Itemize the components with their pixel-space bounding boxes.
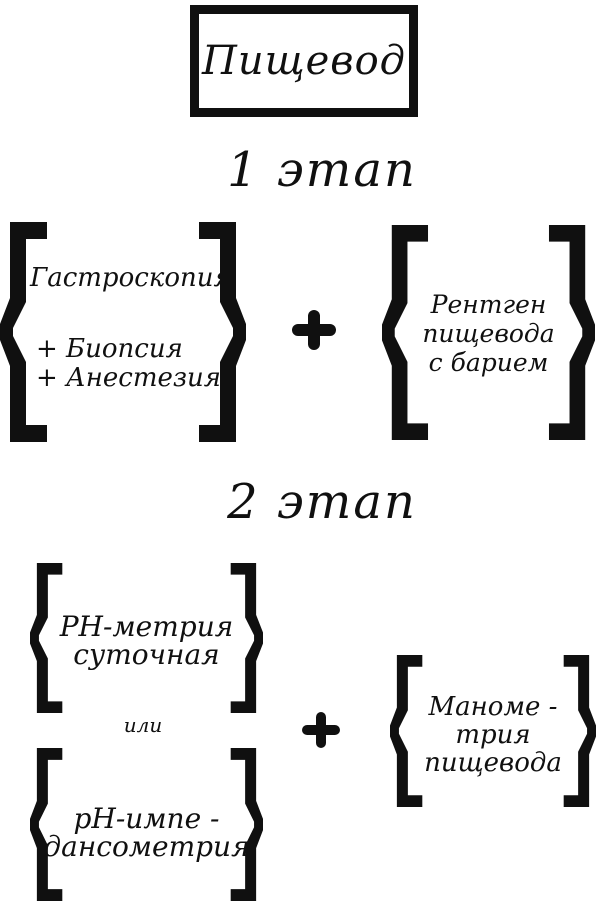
plus-vertical-bar [316,712,326,748]
stage1-right-group: Рентген пищевода с барием [382,225,595,440]
stage2-right-group: Маноме - трия пищевода [390,655,596,807]
page-title: Пищевод [202,38,406,84]
stage2-option-a-text: PH-метрия суточная [58,613,235,669]
stage2-right-text: Маноме - трия пищевода [418,693,568,777]
diagram-canvas: Пищевод 1 этап Гастроскопия + Биопсия + … [0,0,600,906]
stage1-right-line2: пищевода [422,319,554,348]
stage1-left-group: Гастроскопия + Биопсия + Анестезия [0,222,246,442]
plus-vertical-bar [308,310,320,350]
stage2-option-b-group: pH-импе - дансометрия [30,748,263,901]
stage1-right-line1: Рентген [431,290,547,319]
stage1-right-text: Рентген пищевода с барием [422,290,555,377]
plus-label: + [292,310,293,311]
stage2-heading: 2 этап [22,474,600,530]
stage2-right-line1: Маноме - [429,693,558,721]
plus-icon: + [292,310,336,350]
curly-brace-right-icon [198,222,246,442]
stage1-left-line1: Гастроскопия [30,262,216,294]
stage2-right-line2: трия [455,721,530,749]
stage1-right-line3: с барием [429,348,549,377]
stage1-heading: 1 этап [22,142,600,198]
curly-brace-left-icon [0,222,48,442]
stage2-right-line3: пищевода [424,749,562,777]
stage2-option-a-line2: суточная [73,641,219,669]
curly-brace-right-icon [230,563,263,713]
stage2-option-b-line2: дансометрия [43,833,249,861]
stage2-option-b-line1: pH-импе - [73,805,219,833]
stage2-option-a-line1: PH-метрия [60,613,234,641]
stage1-left-line3: + Анестезия [36,363,221,393]
stage2-option-b-text: pH-импе - дансометрия [48,805,245,861]
title-box: Пищевод [190,5,418,117]
curly-brace-right-icon [563,655,596,807]
or-label: или [103,712,183,738]
stage1-left-line2: + Биопсия [36,334,183,364]
plus-label: + [302,712,303,713]
plus-icon: + [302,712,340,748]
curly-brace-right-icon [548,225,595,440]
stage2-option-a-group: PH-метрия суточная [30,563,263,713]
curly-brace-right-icon [230,748,263,901]
